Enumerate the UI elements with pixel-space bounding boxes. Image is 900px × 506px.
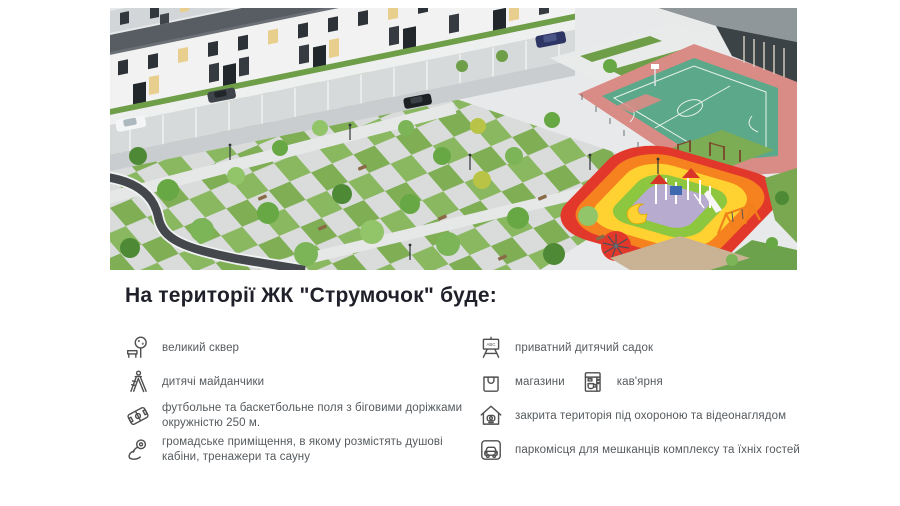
parking-car-icon	[478, 437, 504, 463]
feature-label: великий сквер	[162, 341, 239, 356]
playground-slide-icon	[125, 369, 151, 395]
feature-playgrounds: дитячі майданчики	[125, 366, 478, 398]
feature-label: паркомісця для мешканців комплексу та їх…	[515, 443, 800, 458]
sports-field-icon	[125, 403, 151, 429]
shopping-bag-icon	[478, 369, 504, 395]
aerial-complex-illustration	[110, 8, 797, 270]
feature-shops: магазини	[478, 366, 565, 398]
feature-label: футбольне та баскетбольне поля з біговим…	[162, 401, 478, 431]
feature-kindergarten: ABC приватний дитячий садок	[478, 332, 855, 364]
feature-cafe: кав'ярня	[580, 366, 663, 398]
features-column-left: великий сквер	[125, 332, 478, 468]
feature-label: магазини	[515, 375, 565, 390]
landing-page: На території ЖК "Струмочок" буде:	[0, 0, 900, 506]
feature-sports-field: футбольне та баскетбольне поля з біговим…	[125, 400, 478, 432]
page-title: На території ЖК "Струмочок" буде:	[125, 284, 855, 308]
amenities-section: На території ЖК "Струмочок" буде:	[125, 284, 855, 468]
feature-parking: паркомісця для мешканців комплексу та їх…	[478, 434, 855, 466]
feature-label: дитячі майданчики	[162, 375, 264, 390]
feature-label: кав'ярня	[617, 375, 663, 390]
feature-row-shops-cafe: магазини	[478, 366, 855, 398]
feature-gym: громадське приміщення, в якому розмістят…	[125, 434, 478, 466]
park-icon	[125, 335, 151, 361]
coffee-machine-icon	[580, 369, 606, 395]
svg-text:ABC: ABC	[487, 342, 496, 347]
feature-label: приватний дитячий садок	[515, 341, 653, 356]
feature-park: великий сквер	[125, 332, 478, 364]
secured-house-icon	[478, 403, 504, 429]
feature-label: закрита територія під охороною та відеон…	[515, 409, 786, 424]
feature-label: громадське приміщення, в якому розмістят…	[162, 435, 478, 465]
features-list: великий сквер	[125, 332, 855, 468]
kindergarten-board-icon: ABC	[478, 335, 504, 361]
features-column-right: ABC приватний дитячий садок магази	[478, 332, 855, 468]
gym-arm-icon	[125, 437, 151, 463]
feature-security: закрита територія під охороною та відеон…	[478, 400, 855, 432]
hero-aerial-render	[110, 8, 797, 270]
